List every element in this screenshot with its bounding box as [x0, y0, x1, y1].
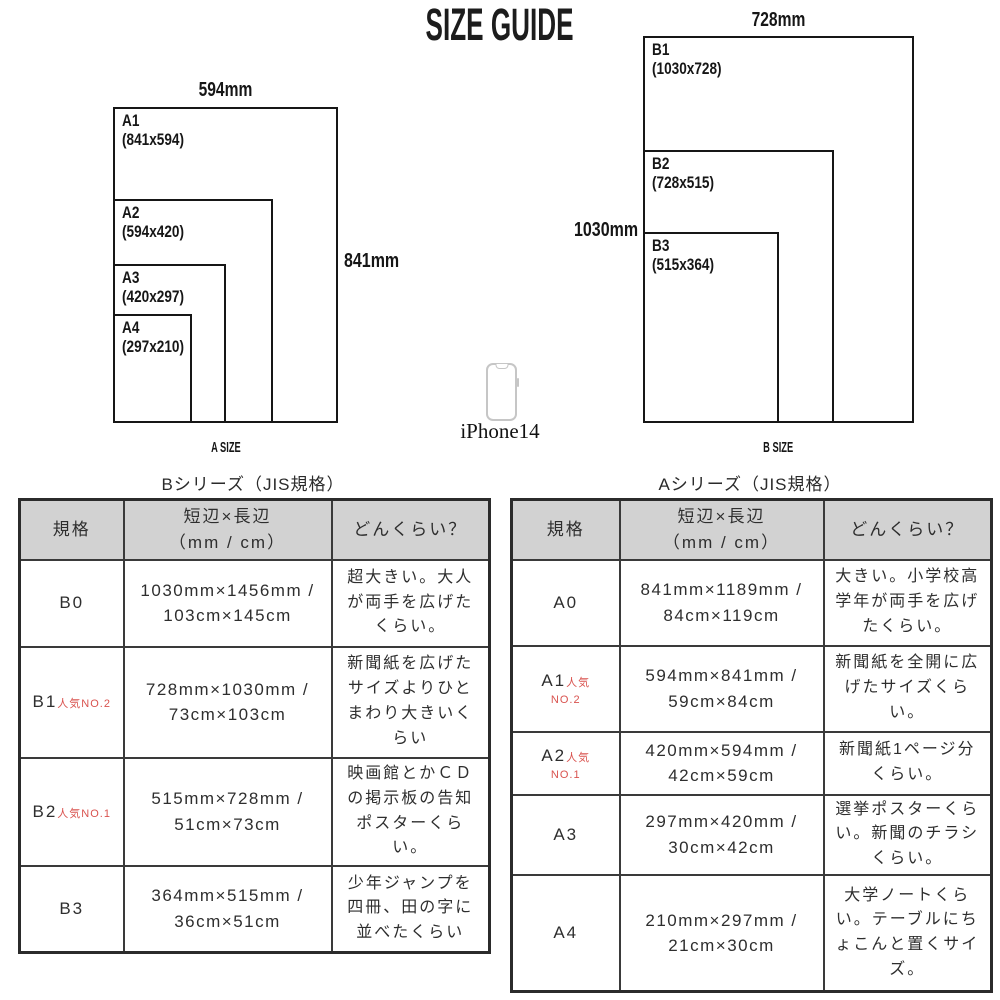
table-row-b1: B1人気NO.2 728mm×1030mm / 73cm×103cm 新聞紙を広…: [20, 647, 490, 758]
iphone-side-button-icon: [517, 378, 519, 387]
a2-dims: (594x420): [122, 223, 184, 242]
b3-desc-cell: 少年ジャンプを四冊、田の字に並べたくらい: [332, 866, 490, 953]
b-height-dimension-label: 1030mm: [558, 220, 638, 240]
table-row-a3: A3 297mm×420mm / 30cm×42cm 選挙ポスターくらい。新聞の…: [512, 795, 992, 875]
a3-dims: (420x297): [122, 288, 184, 307]
a3-name: A3: [122, 269, 184, 288]
a1-spec-cell: A1人気NO.2: [512, 646, 620, 732]
a-header-spec: 規格: [512, 500, 620, 560]
b2-dims: (728x515): [652, 174, 714, 193]
b3-box-label: B3 (515x364): [652, 237, 714, 274]
a0-size-cell: 841mm×1189mm / 84cm×119cm: [620, 560, 824, 646]
b1-size-cell: 728mm×1030mm / 73cm×103cm: [124, 647, 332, 758]
a3-spec-cell: A3: [512, 795, 620, 875]
b1-name: B1: [652, 41, 722, 60]
a4-dims: (297x210): [122, 338, 184, 357]
b1-spec-cell: B1人気NO.2: [20, 647, 124, 758]
a-header-size: 短辺×長辺 （mm / cm）: [620, 500, 824, 560]
a-series-title: Aシリーズ（JIS規格）: [510, 470, 990, 495]
a4-box-label: A4 (297x210): [122, 319, 184, 356]
b-width-dimension-label: 728mm: [643, 10, 914, 30]
table-row-b3: B3 364mm×515mm / 36cm×51cm 少年ジャンプを四冊、田の字…: [20, 866, 490, 953]
table-row-a4: A4 210mm×297mm / 21cm×30cm 大学ノートくらい。テーブル…: [512, 875, 992, 992]
b1-dims: (1030x728): [652, 60, 722, 79]
b0-size-cell: 1030mm×1456mm / 103cm×145cm: [124, 560, 332, 647]
b-header-size: 短辺×長辺 （mm / cm）: [124, 500, 332, 560]
a0-spec-cell: A0: [512, 560, 620, 646]
table-row-a2: A2人気NO.1 420mm×594mm / 42cm×59cm 新聞紙1ページ…: [512, 732, 992, 795]
b-size-caption: B SIZE: [643, 440, 914, 455]
b-series-table: 規格 短辺×長辺 （mm / cm） どんくらい？ B0 1030mm×1456…: [18, 498, 491, 954]
a-series-header-row: 規格 短辺×長辺 （mm / cm） どんくらい？: [512, 500, 992, 560]
b-series-title: Bシリーズ（JIS規格）: [18, 470, 488, 495]
b2-box-label: B2 (728x515): [652, 155, 714, 192]
b3-spec-cell: B3: [20, 866, 124, 953]
a1-size-cell: 594mm×841mm / 59cm×84cm: [620, 646, 824, 732]
b3-name: B3: [652, 237, 714, 256]
a1-dims: (841x594): [122, 131, 184, 150]
a1-box-label: A1 (841x594): [122, 112, 184, 149]
b2-popularity-badge: 人気NO.1: [57, 808, 111, 820]
a1-popularity-rank: NO.2: [519, 694, 613, 706]
b-header-spec: 規格: [20, 500, 124, 560]
a4-size-cell: 210mm×297mm / 21cm×30cm: [620, 875, 824, 992]
a2-name: A2: [122, 204, 184, 223]
table-row-a0: A0 841mm×1189mm / 84cm×119cm 大きい。小学校高学年が…: [512, 560, 992, 646]
a-header-how: どんくらい？: [824, 500, 992, 560]
b-header-how: どんくらい？: [332, 500, 490, 560]
b2-spec-cell: B2人気NO.1: [20, 758, 124, 866]
b1-popularity-badge: 人気NO.2: [57, 698, 111, 710]
b2-name: B2: [652, 155, 714, 174]
table-row-b0: B0 1030mm×1456mm / 103cm×145cm 超大きい。大人が両…: [20, 560, 490, 647]
a2-size-cell: 420mm×594mm / 42cm×59cm: [620, 732, 824, 795]
a4-desc-cell: 大学ノートくらい。テーブルにちょこんと置くサイズ。: [824, 875, 992, 992]
a4-spec-cell: A4: [512, 875, 620, 992]
b0-desc-cell: 超大きい。大人が両手を広げたくらい。: [332, 560, 490, 647]
b2-desc-cell: 映画館とかＣＤの掲示板の告知ポスターくらい。: [332, 758, 490, 866]
b3-paper-box: B3 (515x364): [643, 232, 779, 423]
size-guide-page: SIZE GUIDE 594mm A1 (841x594) A2 (594x42…: [0, 0, 1000, 1000]
a-width-dimension-label: 594mm: [113, 80, 338, 100]
b2-size-cell: 515mm×728mm / 51cm×73cm: [124, 758, 332, 866]
table-row-a1: A1人気NO.2 594mm×841mm / 59cm×84cm 新聞紙を全開に…: [512, 646, 992, 732]
a-series-table: 規格 短辺×長辺 （mm / cm） どんくらい？ A0 841mm×1189m…: [510, 498, 993, 993]
b3-dims: (515x364): [652, 256, 714, 275]
iphone-icon: [486, 363, 517, 421]
iphone-label: iPhone14: [440, 419, 560, 444]
a4-name: A4: [122, 319, 184, 338]
a1-desc-cell: 新聞紙を全開に広げたサイズくらい。: [824, 646, 992, 732]
a1-name: A1: [122, 112, 184, 131]
a-height-dimension-label: 841mm: [344, 251, 413, 271]
a3-desc-cell: 選挙ポスターくらい。新聞のチラシくらい。: [824, 795, 992, 875]
a2-box-label: A2 (594x420): [122, 204, 184, 241]
table-row-b2: B2人気NO.1 515mm×728mm / 51cm×73cm 映画館とかＣＤ…: [20, 758, 490, 866]
b1-box-label: B1 (1030x728): [652, 41, 722, 78]
b3-size-cell: 364mm×515mm / 36cm×51cm: [124, 866, 332, 953]
b0-spec-cell: B0: [20, 560, 124, 647]
a3-box-label: A3 (420x297): [122, 269, 184, 306]
iphone-notch-icon: [495, 364, 508, 369]
a1-popularity-badge: 人気: [566, 677, 590, 689]
a2-popularity-badge: 人気: [566, 752, 590, 764]
a3-size-cell: 297mm×420mm / 30cm×42cm: [620, 795, 824, 875]
a4-paper-box: A4 (297x210): [113, 314, 192, 423]
a2-desc-cell: 新聞紙1ページ分くらい。: [824, 732, 992, 795]
a0-desc-cell: 大きい。小学校高学年が両手を広げたくらい。: [824, 560, 992, 646]
page-title-text: SIZE GUIDE: [426, 2, 574, 47]
b-series-header-row: 規格 短辺×長辺 （mm / cm） どんくらい？: [20, 500, 490, 560]
a-size-caption: A SIZE: [113, 440, 338, 455]
a2-popularity-rank: NO.1: [519, 769, 613, 781]
b1-desc-cell: 新聞紙を広げたサイズよりひとまわり大きいくらい: [332, 647, 490, 758]
a2-spec-cell: A2人気NO.1: [512, 732, 620, 795]
